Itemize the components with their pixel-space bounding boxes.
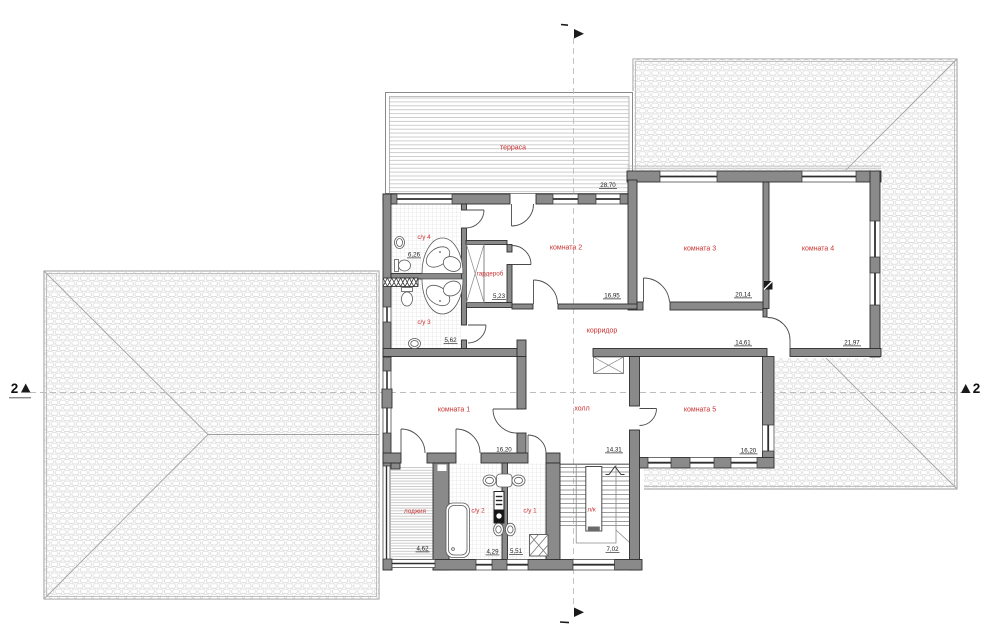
svg-text:с/у 4: с/у 4: [417, 234, 431, 241]
svg-text:с/у 3: с/у 3: [417, 319, 431, 326]
svg-text:4,29: 4,29: [486, 549, 499, 556]
svg-text:14,31: 14,31: [606, 447, 622, 454]
svg-text:терраса: терраса: [500, 145, 526, 152]
svg-text:комната 4: комната 4: [802, 246, 834, 253]
svg-text:комната 5: комната 5: [684, 407, 716, 414]
svg-text:комната 2: комната 2: [550, 245, 582, 252]
svg-text:5,23: 5,23: [493, 293, 506, 300]
svg-text:с/у 2: с/у 2: [471, 508, 485, 515]
svg-text:16,95: 16,95: [604, 293, 620, 300]
svg-text:20,14: 20,14: [735, 292, 751, 299]
svg-text:14,61: 14,61: [735, 340, 751, 347]
svg-text:корридор: корридор: [587, 328, 618, 335]
svg-text:холл: холл: [574, 406, 589, 413]
svg-text:5,62: 5,62: [444, 337, 457, 344]
svg-text:6,26: 6,26: [408, 252, 421, 259]
svg-text:16,20: 16,20: [496, 447, 512, 454]
svg-text:2: 2: [973, 381, 981, 396]
svg-text:2: 2: [11, 381, 19, 396]
svg-text:лоджия: лоджия: [404, 508, 426, 515]
svg-text:5,51: 5,51: [510, 548, 523, 555]
svg-text:с/у 1: с/у 1: [523, 508, 537, 515]
svg-text:28,70: 28,70: [600, 182, 616, 189]
svg-text:комната 3: комната 3: [684, 246, 716, 253]
svg-text:21,97: 21,97: [844, 340, 860, 347]
svg-text:комната 1: комната 1: [438, 407, 470, 414]
svg-text:7,02: 7,02: [606, 546, 619, 553]
svg-text:4,62: 4,62: [416, 546, 429, 553]
svg-text:л/к: л/к: [587, 507, 595, 514]
svg-text:гардероб: гардероб: [477, 270, 504, 278]
svg-text:16,20: 16,20: [741, 448, 757, 455]
